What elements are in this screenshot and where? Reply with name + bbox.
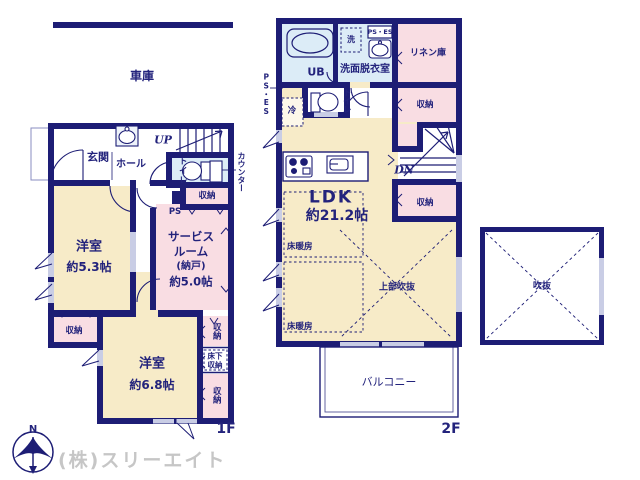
stairwell-2f [423, 128, 456, 179]
compass-north-label: N [29, 425, 37, 435]
room53-name: 洋室 [76, 241, 102, 254]
ps-label: PS [169, 208, 181, 217]
sink-icon [369, 40, 391, 58]
storage-by-toilet-label: 収納 [198, 192, 215, 201]
toilet-2f-label: トイレ [342, 88, 351, 114]
service-room-line2: ルーム [174, 246, 208, 258]
storage-2f-mid-label: 収納 [416, 199, 433, 208]
ldk-name: LDK [309, 190, 353, 207]
ldk-size: 約21.2帖 [306, 209, 369, 223]
floor-heating-label-1: 床暖房 [287, 243, 313, 252]
ps-block [172, 191, 180, 204]
service-room-line1: サービス [168, 231, 214, 243]
linen-label: リネン庫 [410, 50, 446, 59]
garage-label: 車庫 [130, 70, 154, 82]
company-name: (株)スリーエイト [58, 452, 226, 471]
kitchen-sink-icon [327, 156, 353, 173]
toilet-icon-2f [311, 93, 338, 112]
window-divider [174, 419, 177, 424]
floor1-label: 1F [216, 422, 235, 436]
storage-2f-top-label: 収納 [416, 101, 433, 110]
ps-es-box-label: PS・ES [367, 29, 392, 36]
storage-bl-label: 収納 [65, 327, 82, 336]
compass-icon [13, 432, 53, 474]
service-room-line3: (納戸) [176, 262, 205, 272]
hall-label: ホール [116, 160, 146, 170]
service-door-arc [137, 188, 157, 208]
washer-label: 洗 [347, 36, 355, 44]
bathtub-icon [287, 29, 333, 57]
counter-surface [210, 161, 222, 182]
balcony-label: バルコニー [362, 377, 417, 388]
floor-plan-page: 車庫 玄関 ホール UP トイレ カウンター 収納 PS 洋室 約5.3帖 サー… [0, 0, 640, 480]
room68-name: 洋室 [139, 358, 165, 371]
entrance-label: 玄関 [87, 152, 109, 163]
unit-bath-label: UB [307, 67, 324, 78]
storage-2f-top-ext [398, 124, 417, 146]
void-label: 吹抜 [533, 283, 551, 292]
toilet-1f-label: トイレ [178, 157, 187, 186]
entrance-door-arc [51, 150, 83, 182]
stove-icon [286, 156, 312, 177]
room68-size: 約6.8帖 [129, 379, 174, 391]
underfloor-line1: 床下 [208, 352, 223, 360]
kitchen-counter [283, 152, 368, 181]
storage-r1-label: 収納 [212, 323, 221, 340]
room53-size: 約5.3帖 [66, 261, 111, 273]
up-label: UP [154, 135, 172, 146]
floor-heating-label-2: 床暖房 [287, 323, 313, 332]
washbasin-icon [116, 126, 138, 146]
underfloor-line2: 収納 [208, 361, 223, 369]
f1-stairs [176, 129, 222, 152]
fridge-label: 冷 [288, 107, 297, 116]
service-room-size: 約5.0帖 [169, 276, 212, 288]
ps-es-side-label: PS・ES [262, 72, 270, 116]
counter-label: カウンター [237, 152, 245, 192]
hall-2f [350, 88, 392, 118]
washroom-label: 洗面脱衣室 [340, 65, 390, 75]
dn-label: DN [394, 165, 414, 176]
garage-line [53, 22, 233, 28]
floor2-label: 2F [441, 422, 460, 436]
storage-r2-label: 収納 [212, 387, 221, 404]
upper-void-label: 上部吹抜 [379, 284, 415, 293]
